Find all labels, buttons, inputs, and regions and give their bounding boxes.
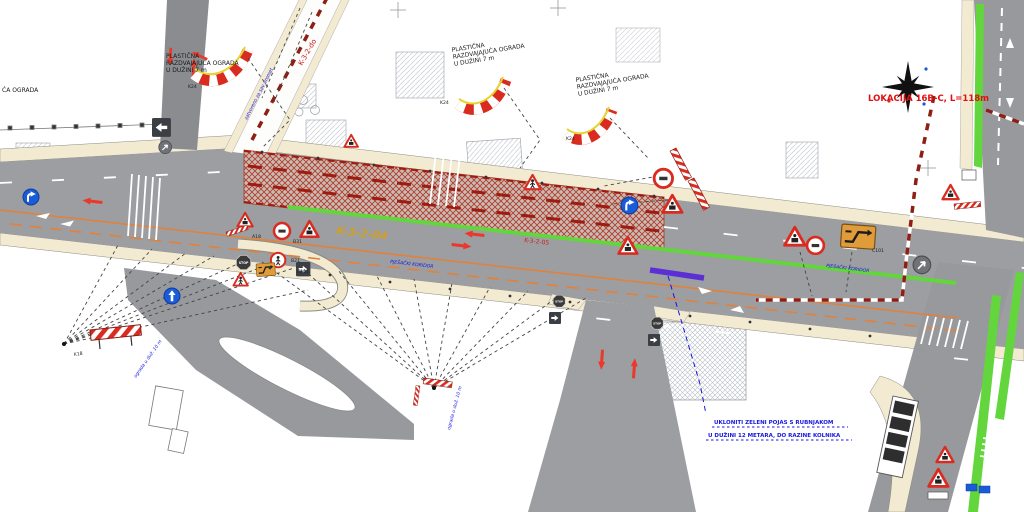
mandatory-circle-sign [159, 141, 172, 154]
compass-rose [882, 61, 934, 113]
c101-label-1: C101 [297, 269, 309, 275]
remove-green-belt-note-line2: U DUŽINI 12 METARA, DO RAZINE KOLNIKA [708, 431, 841, 439]
fence10-note-2: ograda u duž. 10 m [445, 385, 464, 431]
fence-label-3: PLASTIČNA RAZDVAJAJUĆA OGRADA U DUŽINI 7… [575, 66, 651, 98]
stop-sign [651, 317, 663, 329]
blue-bend-arrow-sign [23, 189, 39, 205]
stop-sign [236, 255, 250, 269]
fence-line [0, 123, 164, 130]
c101-label-2: C101 [872, 248, 884, 254]
mandatory-circle-sign [913, 256, 931, 274]
prohibition-circle-sign [807, 237, 824, 254]
k24-barrier-3 [566, 107, 612, 139]
detour-board-c101 [256, 263, 276, 277]
left-arrow-sign [152, 118, 171, 137]
location-label: LOKACIJA 16B-C, L=118m [868, 94, 989, 104]
k18-label: K18 [73, 351, 83, 358]
a18-label: A18 [252, 234, 261, 240]
stop-sign [553, 295, 565, 307]
warning-triangle [942, 185, 958, 199]
remove-green-belt-note-line1: UKLONITI ZELENI POJAS S RUBNJAKOM [714, 420, 833, 426]
traffic-regulation-plan: STOP [0, 0, 1024, 512]
k24-label-3: K24 [566, 136, 575, 142]
striped-barrier-board [954, 201, 981, 209]
b21-label: B21 [291, 258, 300, 264]
k24-barrier-2 [458, 77, 506, 109]
warning-triangle [344, 135, 358, 147]
k24-label-2: K24 [440, 100, 449, 106]
fence10-note-1: ograda u duž. 10 m [132, 338, 164, 379]
blue-up-arrow-sign [164, 288, 180, 304]
fence-label-2: PLASTIČNA RAZDVAJAJUĆA OGRADA U DUŽINI 7… [451, 36, 527, 68]
fence-label-line3: U DUŽINI 7 m [166, 66, 207, 74]
prohibition-circle-sign [274, 223, 290, 239]
fence-label-partial: ĆA OGRADA [2, 87, 39, 94]
detour-board-c101 [840, 224, 876, 249]
k24-label-1: K24 [188, 84, 197, 90]
prohibition-circle-sign [654, 169, 672, 187]
fence-label-line1: PLASTIČNA [166, 53, 200, 60]
striped-barrier-with-posts [90, 325, 142, 350]
blue-bend-arrow-sign [621, 197, 638, 214]
arrow-board [648, 334, 660, 346]
fence-label-line2: RAZDVAJAJUĆA OGRADA [166, 60, 240, 67]
striped-barrier-board [413, 385, 420, 405]
plan-canvas: STOP [0, 0, 1024, 512]
b31-label: B31 [293, 239, 302, 245]
striped-barrier-board [423, 378, 452, 388]
arrow-board [549, 312, 561, 324]
